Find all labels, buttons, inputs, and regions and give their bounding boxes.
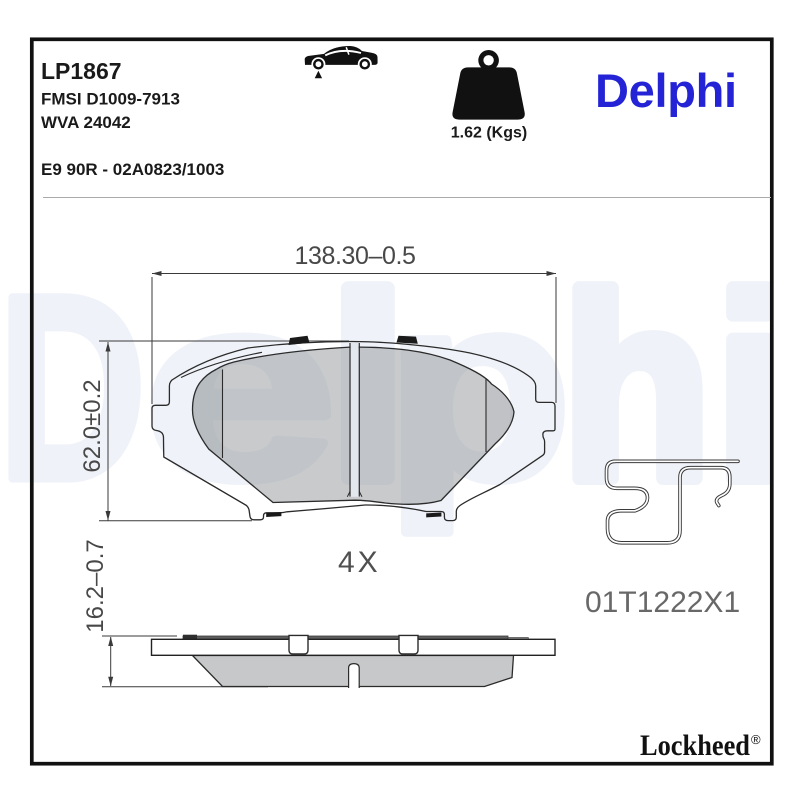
svg-text:D: D [0,240,146,533]
svg-text:®: ® [751,732,761,747]
svg-text:16.2–0.7: 16.2–0.7 [82,539,109,632]
svg-text:4X: 4X [338,546,381,579]
svg-text:FMSI D1009-7913: FMSI D1009-7913 [41,90,180,109]
svg-text:62.0±0.2: 62.0±0.2 [79,379,106,472]
svg-text:138.30–0.5: 138.30–0.5 [294,242,415,270]
svg-text:01T1222X1: 01T1222X1 [585,586,740,619]
svg-text:WVA 24042: WVA 24042 [41,113,131,132]
svg-text:LP1867: LP1867 [41,58,122,84]
svg-text:E9 90R - 02A0823/1003: E9 90R - 02A0823/1003 [41,160,224,179]
svg-text:Lockheed: Lockheed [640,730,750,763]
svg-text:Delphi: Delphi [595,64,737,117]
svg-text:1.62 (Kgs): 1.62 (Kgs) [451,125,527,142]
